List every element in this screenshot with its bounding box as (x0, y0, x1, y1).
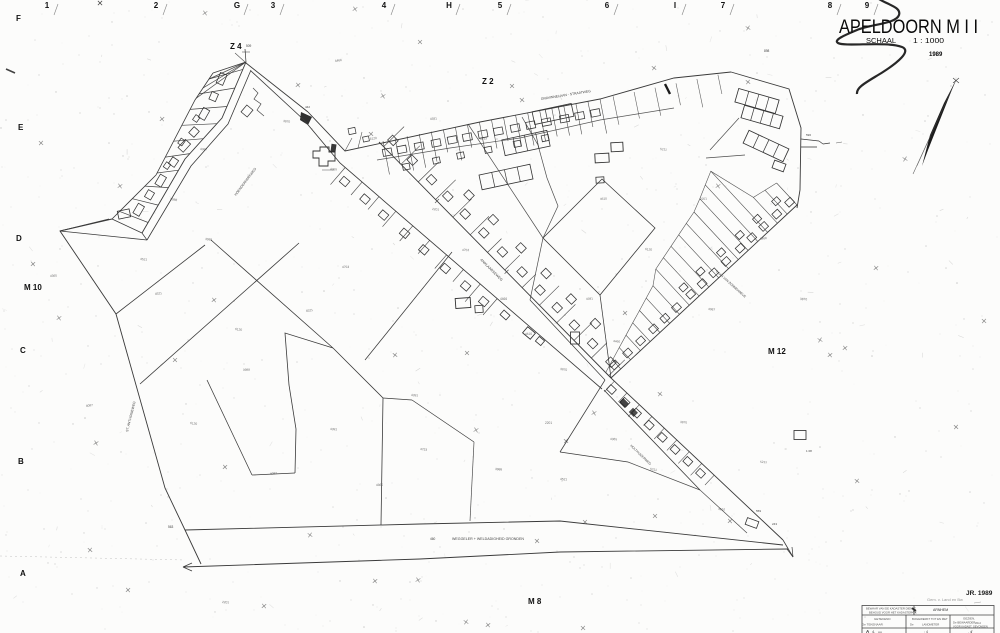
svg-text:M 12: M 12 (768, 347, 786, 356)
svg-text:4391: 4391 (330, 427, 338, 431)
svg-text:1: 1 (45, 1, 50, 10)
svg-text:BIJGEWERKT TOT EN MET: BIJGEWERKT TOT EN MET (912, 617, 948, 621)
svg-text:4365: 4365 (50, 274, 58, 278)
svg-text:4365: 4365 (376, 483, 383, 487)
svg-text:I: I (674, 1, 676, 10)
svg-text:G: G (234, 1, 240, 10)
svg-text:1989: 1989 (929, 52, 943, 58)
svg-text:Z 4: Z 4 (230, 42, 242, 51)
svg-text:3988: 3988 (495, 467, 503, 472)
svg-text:2201: 2201 (432, 207, 440, 212)
svg-text:6: 6 (605, 1, 610, 10)
svg-text:460: 460 (430, 537, 436, 541)
svg-text:C: C (20, 346, 26, 355)
svg-text:4087: 4087 (708, 307, 716, 312)
svg-text:4: 4 (382, 1, 387, 10)
svg-text:5: 5 (498, 1, 503, 10)
svg-text:3870: 3870 (800, 297, 807, 301)
svg-text:559: 559 (756, 509, 761, 513)
svg-text:APELDOORN M I I: APELDOORN M I I (839, 17, 978, 38)
svg-text:M 10: M 10 (24, 283, 42, 292)
svg-text:H: H (446, 1, 452, 10)
svg-text:VOOR KADAST. GEVONDEN: VOOR KADAST. GEVONDEN (953, 624, 988, 628)
svg-text:509: 509 (246, 44, 252, 48)
svg-text:563: 563 (168, 525, 174, 529)
svg-text:596: 596 (806, 133, 811, 137)
svg-text:442: 442 (305, 105, 310, 109)
svg-text:8: 8 (828, 1, 833, 10)
svg-text:LANDMETER: LANDMETER (922, 623, 939, 627)
svg-text:De BEWAARDER: De BEWAARDER (953, 621, 975, 625)
svg-text:2201: 2201 (222, 600, 230, 605)
svg-text:243: 243 (772, 522, 777, 526)
svg-text:5211: 5211 (760, 460, 767, 464)
svg-text:1 : 1000: 1 : 1000 (913, 38, 944, 45)
svg-text:4391: 4391 (430, 116, 438, 121)
svg-text:4753: 4753 (462, 248, 469, 252)
svg-text:3870: 3870 (680, 420, 688, 424)
svg-text:898: 898 (764, 49, 770, 53)
svg-text:3: 3 (271, 1, 276, 10)
svg-text:2: 2 (154, 1, 159, 10)
svg-text:5211: 5211 (660, 147, 667, 152)
svg-text:4521: 4521 (140, 257, 148, 262)
svg-text:JR. 1989: JR. 1989 (966, 590, 993, 597)
svg-text:4087: 4087 (200, 147, 208, 151)
svg-text:4610: 4610 (600, 196, 608, 201)
svg-text:4391: 4391 (586, 296, 594, 301)
svg-text:9: 9 (865, 1, 870, 10)
svg-text:WEGGELER + WELDADIGHEID GRO: WEGGELER + WELDADIGHEID GRONDEN (452, 537, 524, 541)
svg-text:Z 2: Z 2 (482, 77, 494, 86)
svg-text:D: D (16, 234, 22, 243)
svg-text:BEHOUD VOOR HET KADASTER XX: BEHOUD VOOR HET KADASTER XX (869, 611, 917, 615)
svg-text:A: A (20, 569, 26, 578)
svg-text:Wnd: Wnd (975, 621, 981, 625)
svg-text:4391: 4391 (411, 393, 419, 397)
svg-text:B: B (18, 457, 24, 466)
svg-text:M 8: M 8 (528, 597, 542, 606)
svg-text:E: E (18, 123, 24, 132)
svg-text:De TEKENAAR: De TEKENAAR (862, 623, 884, 627)
svg-text:3988: 3988 (243, 368, 251, 372)
svg-text:7: 7 (721, 1, 726, 10)
svg-text:2201: 2201 (545, 421, 552, 425)
svg-text:4466: 4466 (500, 297, 507, 301)
svg-text:1 08: 1 08 (806, 449, 812, 453)
svg-text:4.: 4. (872, 629, 875, 633)
svg-text:GETEKEND: GETEKEND (874, 617, 891, 621)
svg-text:4365: 4365 (330, 167, 338, 171)
svg-text:4365: 4365 (610, 437, 617, 441)
svg-text:ARNHEM: ARNHEM (933, 608, 948, 612)
svg-text:4521: 4521 (560, 477, 568, 482)
svg-text:De: De (910, 623, 914, 627)
svg-text:4753: 4753 (342, 265, 349, 269)
svg-text:F: F (16, 14, 21, 23)
svg-text:4753: 4753 (420, 447, 428, 452)
svg-text:Gem. v. Land en Bw: Gem. v. Land en Bw (927, 597, 963, 602)
